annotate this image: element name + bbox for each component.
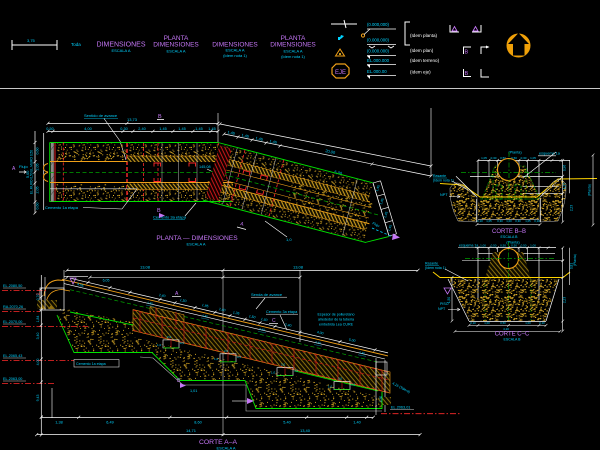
svg-text:(0.000.000): (0.000.000)	[367, 49, 390, 54]
svg-text:0,50: 0,50	[491, 243, 497, 247]
svg-text:C: C	[272, 318, 276, 324]
svg-text:0,5: 0,5	[237, 355, 242, 359]
svg-text:NPT: NPT	[440, 193, 448, 197]
svg-text:1,27: 1,27	[563, 183, 567, 189]
svg-text:ESCALA A: ESCALA A	[111, 48, 130, 53]
svg-text:ESCALA A: ESCALA A	[283, 49, 302, 54]
svg-text:0,30: 0,30	[521, 156, 527, 160]
svg-text:(Idem planta): (Idem planta)	[410, 33, 438, 38]
svg-text:(Idem nota 1): (Idem nota 1)	[433, 179, 454, 183]
svg-text:(Idem nota 1): (Idem nota 1)	[223, 53, 247, 58]
svg-text:0,30: 0,30	[491, 156, 497, 160]
svg-text:0,60: 0,60	[36, 203, 40, 210]
svg-text:ESCALA A: ESCALA A	[216, 446, 235, 450]
svg-text:B: B	[465, 50, 469, 56]
svg-text:EL.2065,43: EL.2065,43	[3, 354, 22, 358]
svg-text:ESCALA A: ESCALA A	[225, 48, 244, 53]
svg-text:6,05: 6,05	[103, 279, 110, 283]
svg-text:alrededor de la tuberia: alrededor de la tuberia	[318, 318, 354, 322]
svg-text:(0.000,000): (0.000,000)	[367, 38, 390, 43]
svg-text:5,40: 5,40	[283, 421, 290, 425]
svg-text:(Idem eje): (Idem eje)	[410, 70, 431, 75]
svg-text:1,00: 1,00	[525, 321, 531, 325]
svg-text:2,0: 2,0	[281, 363, 286, 367]
svg-text:0,50: 0,50	[500, 321, 506, 325]
svg-text:1,05: 1,05	[486, 219, 492, 223]
svg-text:0,50: 0,50	[46, 127, 53, 131]
svg-text:DIMENSIONES: DIMENSIONES	[153, 42, 199, 49]
svg-text:0,96: 0,96	[563, 165, 567, 171]
svg-text:(Idem nota 1): (Idem nota 1)	[281, 54, 305, 59]
svg-text:(Idem plan): (Idem plan)	[410, 48, 434, 53]
svg-text:0,5: 0,5	[180, 341, 185, 345]
svg-text:2,0: 2,0	[167, 335, 172, 339]
svg-text:1,45: 1,45	[178, 127, 185, 131]
svg-text:9,43: 9,43	[36, 395, 40, 402]
svg-text:Sentido de avance: Sentido de avance	[84, 113, 118, 118]
svg-text:1,0: 1,0	[286, 237, 292, 242]
svg-text:(Idem nota 1): (Idem nota 1)	[425, 266, 446, 270]
svg-text:Rasante: Rasante	[433, 174, 446, 178]
svg-text:6,49: 6,49	[106, 421, 113, 425]
svg-text:EL.2080,50: EL.2080,50	[3, 284, 22, 288]
svg-text:0,5: 0,5	[294, 369, 299, 373]
svg-text:ESCALA B: ESCALA B	[504, 337, 522, 341]
svg-text:0,30: 0,30	[497, 219, 503, 223]
svg-text:13,73: 13,73	[127, 117, 138, 122]
svg-text:1,00: 1,00	[480, 243, 486, 247]
svg-text:2,05: 2,05	[36, 187, 40, 194]
svg-text:4,20: 4,20	[503, 327, 509, 331]
svg-text:2,0: 2,0	[338, 377, 343, 381]
svg-text:(Planta): (Planta)	[573, 254, 577, 266]
svg-text:13,08: 13,08	[293, 264, 304, 269]
svg-text:1,50: 1,50	[447, 297, 451, 303]
svg-text:1,45: 1,45	[159, 127, 166, 131]
svg-text:embebida Lea CURE: embebida Lea CURE	[319, 323, 354, 327]
svg-text:1,00: 1,00	[506, 219, 512, 223]
svg-text:13,08: 13,08	[140, 264, 151, 269]
svg-text:1,45: 1,45	[208, 127, 215, 131]
svg-text:0,5: 0,5	[351, 383, 356, 387]
svg-text:1,05: 1,05	[525, 219, 531, 223]
svg-text:0,60: 0,60	[36, 148, 40, 155]
svg-text:Cemento 3a etapa: Cemento 3a etapa	[153, 215, 187, 220]
svg-text:Toda: Toda	[71, 42, 81, 47]
svg-text:0,10: 0,10	[539, 321, 545, 325]
svg-text:Senda de avance: Senda de avance	[251, 292, 283, 297]
svg-text:ESCALA A: ESCALA A	[166, 49, 185, 54]
svg-text:Cemento 3a etapa: Cemento 3a etapa	[266, 310, 298, 314]
svg-text:Flujo: Flujo	[19, 164, 28, 169]
svg-text:4,00: 4,00	[36, 359, 40, 366]
svg-text:1,50: 1,50	[379, 396, 383, 402]
svg-text:2,23: 2,23	[563, 297, 567, 303]
svg-text:1,84: 1,84	[36, 316, 40, 323]
svg-text:EL.MURO 0,50 EL.MURO 0,50: EL.MURO 0,50 EL.MURO 0,50	[30, 150, 34, 194]
svg-text:1,0: 1,0	[157, 343, 162, 347]
svg-text:0,50: 0,50	[500, 243, 506, 247]
svg-text:14,71: 14,71	[186, 428, 197, 433]
svg-text:EL.000.00: EL.000.00	[367, 69, 387, 74]
svg-text:0,10: 0,10	[534, 219, 540, 223]
svg-text:EJE: EJE	[335, 70, 346, 76]
svg-text:RA.2070,26: RA.2070,26	[3, 305, 23, 309]
svg-text:Espesor de poliuretano: Espesor de poliuretano	[318, 313, 355, 317]
svg-text:1,00: 1,00	[484, 321, 490, 325]
svg-text:2,40: 2,40	[138, 127, 145, 131]
svg-text:NPT: NPT	[438, 307, 446, 311]
svg-text:3,40: 3,40	[36, 333, 40, 340]
svg-text:0,70: 0,70	[36, 294, 40, 301]
svg-text:(Planta): (Planta)	[508, 151, 522, 155]
svg-text:(Idem terreno): (Idem terreno)	[410, 58, 440, 63]
svg-text:1,0: 1,0	[214, 357, 219, 361]
svg-text:3,75: 3,75	[27, 38, 36, 43]
svg-text:esquema 1a: esquema 1a	[459, 244, 478, 248]
svg-text:ESCALA A: ESCALA A	[186, 242, 205, 247]
svg-text:Cemento 1a etapa: Cemento 1a etapa	[45, 205, 79, 210]
svg-text:0,30: 0,30	[120, 127, 127, 131]
svg-text:4,00: 4,00	[84, 127, 91, 131]
svg-text:EL.2070,00: EL.2070,00	[3, 320, 22, 324]
svg-text:2,05: 2,05	[36, 164, 40, 171]
svg-text:8,60: 8,60	[194, 421, 201, 425]
svg-text:(Planta): (Planta)	[588, 184, 592, 196]
svg-text:Rasante: Rasante	[425, 262, 438, 266]
svg-text:EL.2063,00: EL.2063,00	[3, 377, 22, 381]
svg-text:1,40: 1,40	[353, 421, 360, 425]
svg-text:145,08: 145,08	[199, 165, 211, 169]
svg-text:2,0: 2,0	[224, 349, 229, 353]
svg-text:1,38: 1,38	[55, 421, 62, 425]
svg-text:1,0: 1,0	[271, 371, 276, 375]
svg-text:13,40: 13,40	[300, 428, 311, 433]
svg-text:1,45: 1,45	[195, 127, 202, 131]
svg-text:ESCALA B: ESCALA B	[501, 235, 519, 239]
svg-text:1,05: 1,05	[530, 156, 536, 160]
svg-text:0,10: 0,10	[477, 219, 483, 223]
svg-text:2,23: 2,23	[570, 205, 574, 211]
svg-text:0,10: 0,10	[470, 321, 476, 325]
svg-text:DIMENSIONES: DIMENSIONES	[270, 42, 316, 49]
svg-text:0,30: 0,30	[515, 219, 521, 223]
svg-text:EL.000.000: EL.000.000	[367, 58, 390, 63]
svg-text:EL.2063,01: EL.2063,01	[391, 406, 410, 410]
svg-text:0,50: 0,50	[521, 243, 527, 247]
svg-text:1,05: 1,05	[481, 156, 487, 160]
svg-text:1,01: 1,01	[190, 389, 197, 393]
svg-text:1,00: 1,00	[530, 243, 536, 247]
svg-text:1,0: 1,0	[328, 385, 333, 389]
svg-text:esquema 1a: esquema 1a	[539, 152, 561, 156]
svg-text:0,50: 0,50	[511, 243, 517, 247]
svg-text:(0.000,000): (0.000,000)	[367, 22, 390, 27]
svg-text:B: B	[465, 71, 469, 77]
svg-text:5,00: 5,00	[26, 171, 30, 178]
svg-text:Cemento 1a etapa: Cemento 1a etapa	[76, 362, 106, 366]
